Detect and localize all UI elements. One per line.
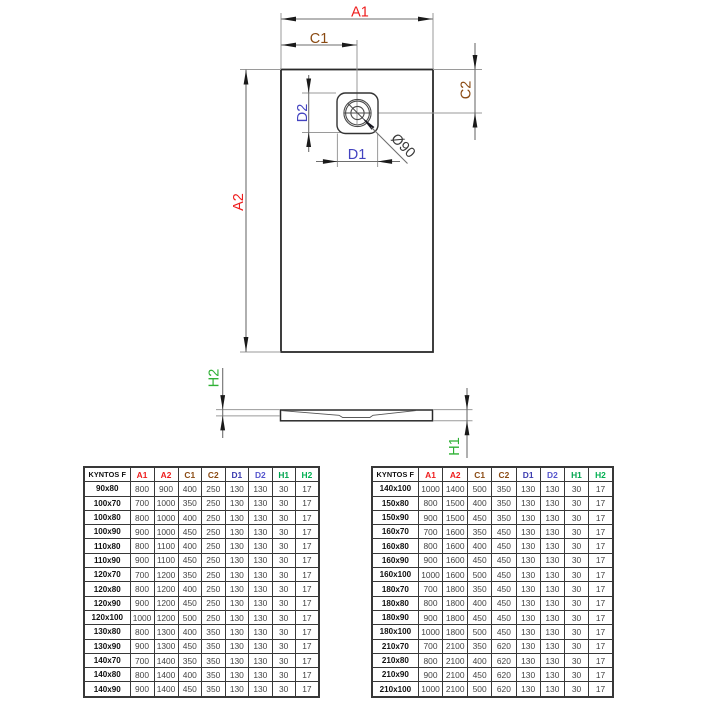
svg-text:H1: H1 <box>447 437 463 456</box>
svg-text:C2: C2 <box>459 81 475 100</box>
svg-text:A1: A1 <box>351 5 369 21</box>
svg-text:C1: C1 <box>310 31 329 47</box>
svg-text:D2: D2 <box>295 104 311 123</box>
svg-text:Ø90: Ø90 <box>387 131 418 162</box>
svg-text:D1: D1 <box>348 147 367 163</box>
svg-text:H2: H2 <box>207 369 223 388</box>
svg-text:A2: A2 <box>231 193 247 211</box>
